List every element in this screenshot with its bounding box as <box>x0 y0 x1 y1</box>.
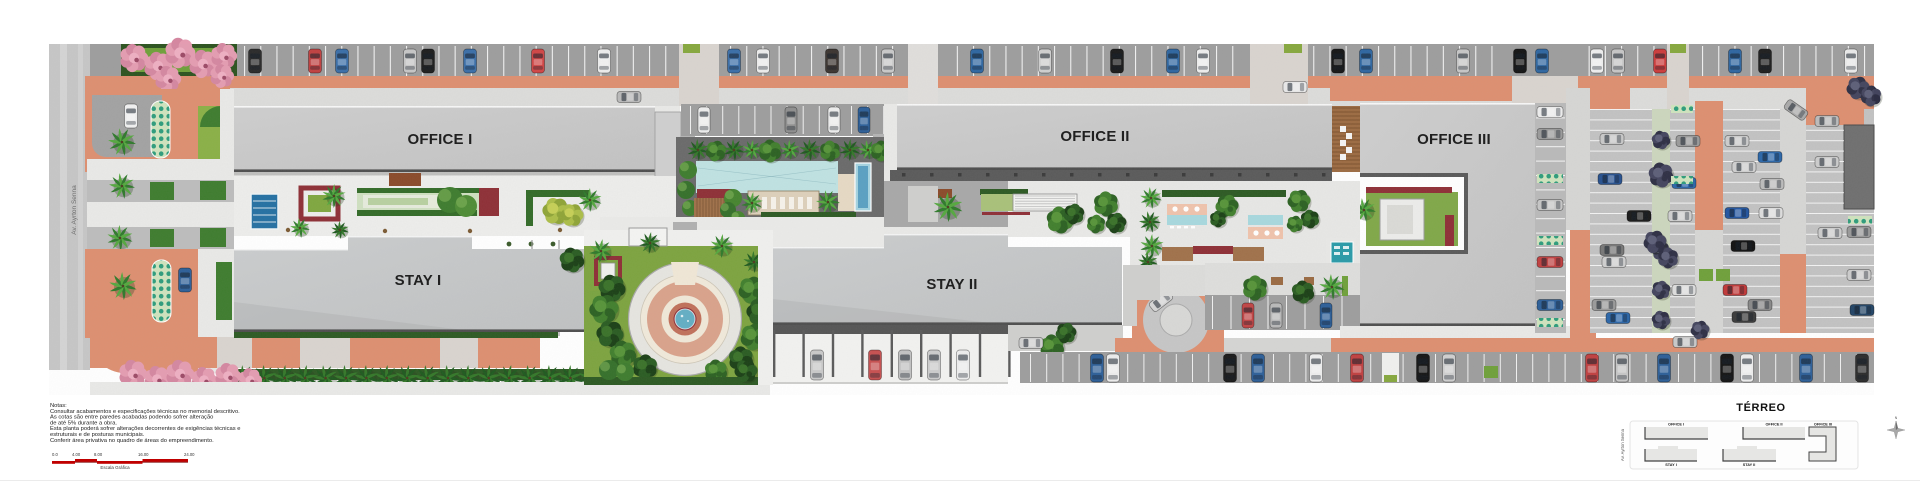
svg-text:OFFICE I: OFFICE I <box>1668 423 1684 427</box>
svg-text:24.00: 24.00 <box>184 452 195 457</box>
svg-text:0.0: 0.0 <box>52 452 58 457</box>
svg-text:Conferir área privativa no qua: Conferir área privativa no quadro de áre… <box>50 438 214 444</box>
svg-text:Escala Gráfica: Escala Gráfica <box>100 465 130 470</box>
svg-text:STAY I: STAY I <box>1665 463 1677 467</box>
svg-text:4.00: 4.00 <box>72 452 81 457</box>
svg-text:8.00: 8.00 <box>94 452 103 457</box>
svg-text:TÉRREO: TÉRREO <box>1736 401 1785 414</box>
svg-text:Av. Ayrton Senna: Av. Ayrton Senna <box>1620 428 1625 461</box>
svg-text:OFFICE III: OFFICE III <box>1814 423 1832 427</box>
svg-text:OFFICE II: OFFICE II <box>1765 423 1782 427</box>
svg-text:16.00: 16.00 <box>138 452 149 457</box>
svg-text:STAY II: STAY II <box>1743 463 1756 467</box>
